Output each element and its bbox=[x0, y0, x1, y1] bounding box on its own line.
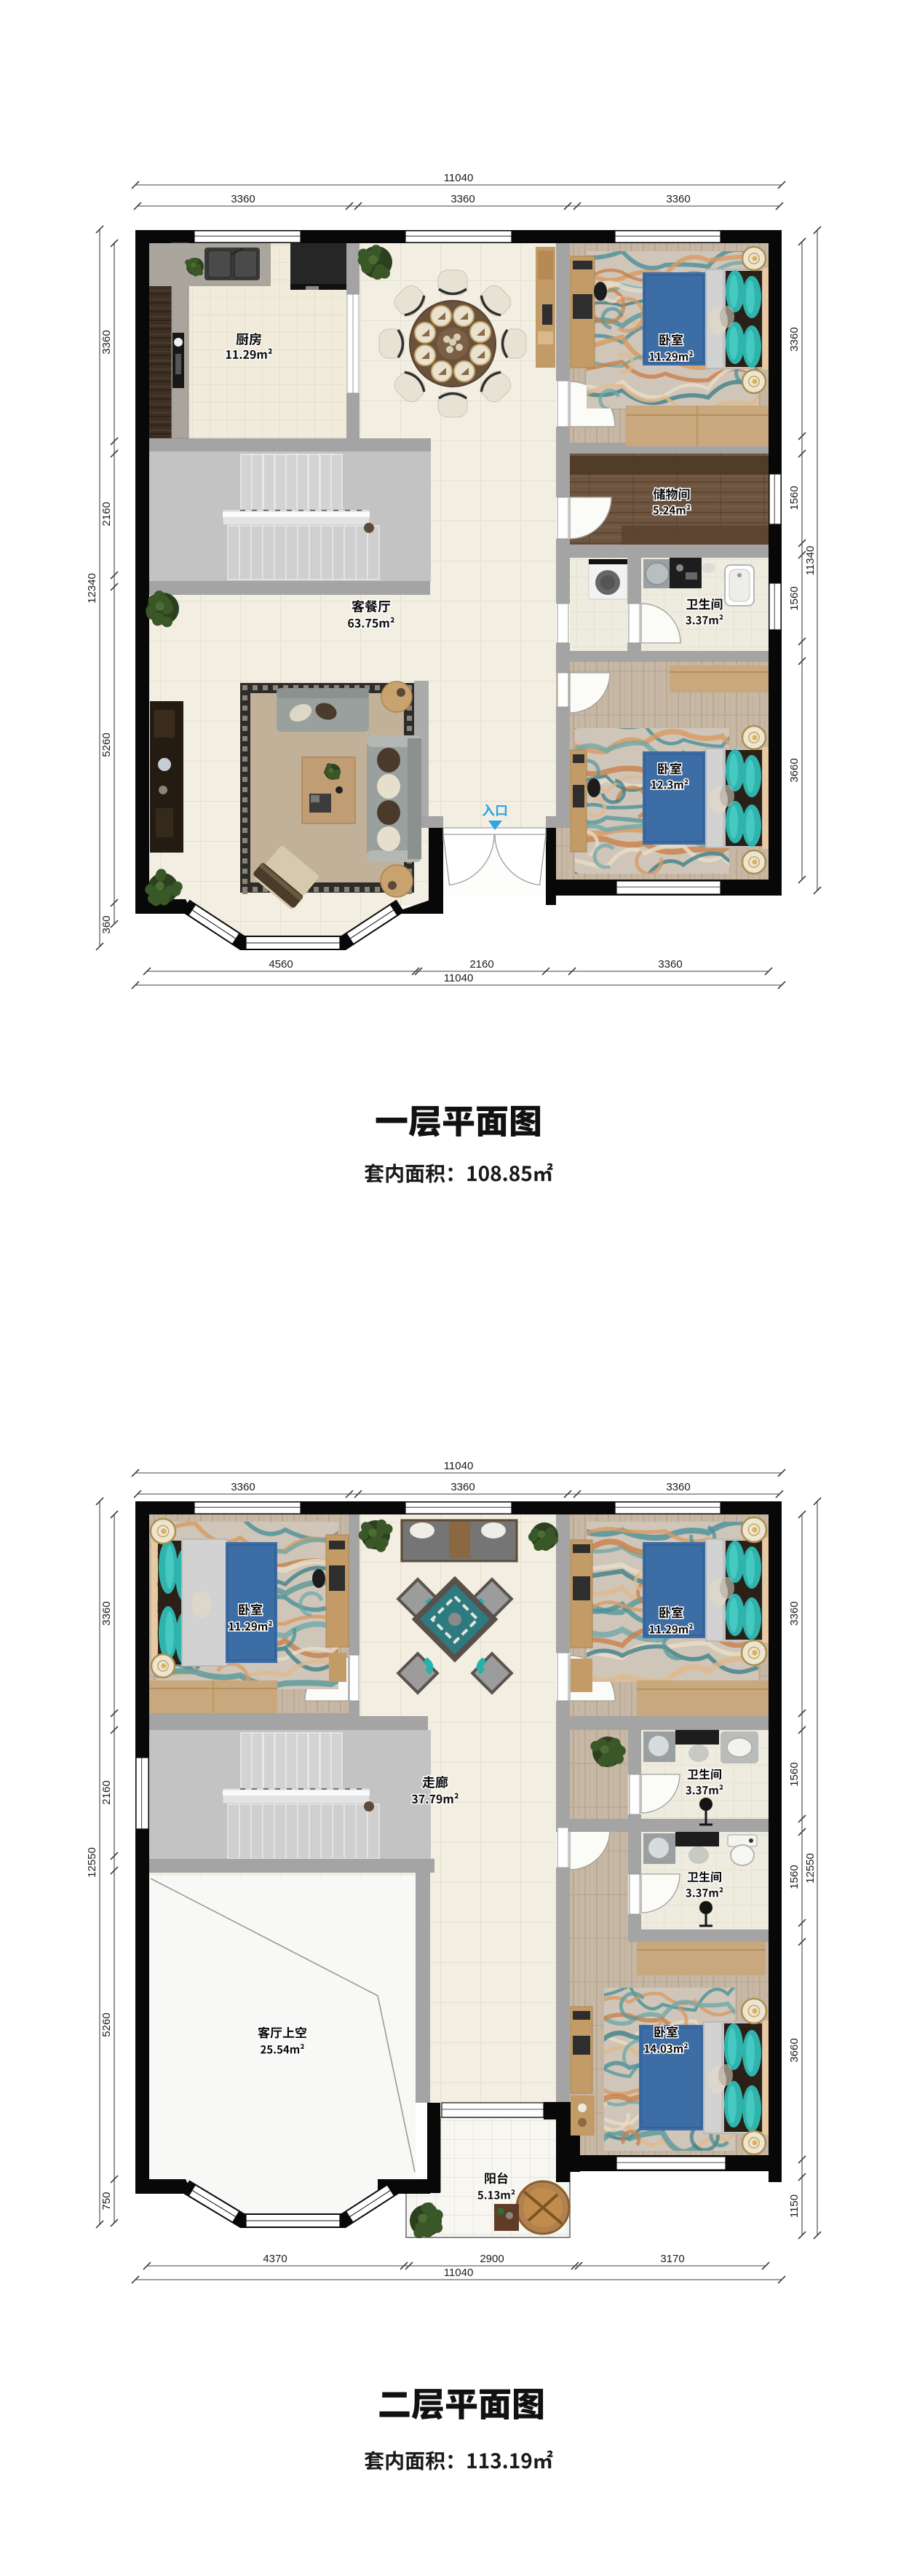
svg-text:2160: 2160 bbox=[100, 502, 113, 526]
svg-text:2160: 2160 bbox=[469, 958, 493, 971]
svg-text:4370: 4370 bbox=[263, 2253, 287, 2265]
svg-text:3360: 3360 bbox=[231, 193, 255, 205]
svg-text:3360: 3360 bbox=[450, 193, 475, 205]
svg-text:11040: 11040 bbox=[444, 2267, 474, 2279]
svg-text:3360: 3360 bbox=[658, 958, 682, 971]
svg-text:11040: 11040 bbox=[444, 1460, 474, 1472]
svg-text:3360: 3360 bbox=[100, 1601, 113, 1625]
svg-text:11040: 11040 bbox=[444, 972, 474, 984]
svg-text:5260: 5260 bbox=[100, 732, 113, 756]
svg-text:2900: 2900 bbox=[480, 2253, 504, 2265]
svg-text:5260: 5260 bbox=[100, 2012, 113, 2036]
svg-text:360: 360 bbox=[100, 915, 113, 933]
svg-text:1560: 1560 bbox=[788, 1865, 801, 1889]
svg-text:3360: 3360 bbox=[100, 330, 113, 354]
svg-text:12340: 12340 bbox=[86, 573, 98, 604]
svg-text:1560: 1560 bbox=[788, 586, 801, 610]
svg-text:3360: 3360 bbox=[666, 193, 690, 205]
svg-text:1150: 1150 bbox=[788, 2194, 801, 2218]
svg-text:12550: 12550 bbox=[86, 1847, 98, 1878]
svg-text:1560: 1560 bbox=[788, 486, 801, 510]
svg-text:3360: 3360 bbox=[788, 1601, 801, 1625]
svg-text:2160: 2160 bbox=[100, 1780, 113, 1804]
svg-text:3360: 3360 bbox=[666, 1481, 690, 1493]
svg-text:11340: 11340 bbox=[804, 546, 817, 576]
svg-text:750: 750 bbox=[100, 2192, 113, 2210]
svg-text:3360: 3360 bbox=[231, 1481, 255, 1493]
svg-text:12550: 12550 bbox=[804, 1853, 817, 1884]
svg-text:3170: 3170 bbox=[660, 2253, 684, 2265]
svg-text:1560: 1560 bbox=[788, 1762, 801, 1786]
svg-text:4560: 4560 bbox=[269, 958, 293, 971]
svg-text:3660: 3660 bbox=[788, 758, 801, 782]
svg-text:3360: 3360 bbox=[450, 1481, 475, 1493]
svg-text:3360: 3360 bbox=[788, 327, 801, 351]
svg-text:11040: 11040 bbox=[444, 172, 474, 184]
svg-text:3660: 3660 bbox=[788, 2038, 801, 2062]
